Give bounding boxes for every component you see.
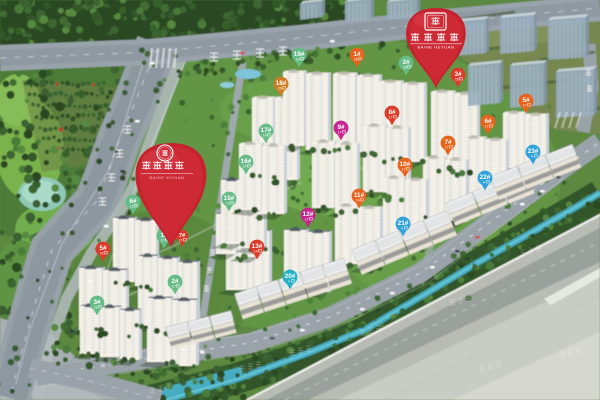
svg-text:26: 26 <box>94 305 98 309</box>
svg-text:24: 24 <box>296 57 300 61</box>
svg-text:22#: 22# <box>480 174 491 181</box>
svg-text:17: 17 <box>389 115 393 119</box>
svg-text:4: 4 <box>483 180 485 184</box>
svg-text:26: 26 <box>455 77 459 81</box>
svg-text:20#: 20# <box>285 273 296 280</box>
svg-text:BAIHE XIYUAN: BAIHE XIYUAN <box>149 175 184 180</box>
svg-text:14: 14 <box>254 249 258 253</box>
svg-text:14: 14 <box>263 133 267 137</box>
svg-text:17: 17 <box>485 124 489 128</box>
svg-text:17: 17 <box>305 217 309 221</box>
svg-text:26: 26 <box>403 65 407 69</box>
svg-text:21#: 21# <box>398 220 409 227</box>
svg-text:17: 17 <box>172 284 176 288</box>
svg-text:4: 4 <box>401 226 403 230</box>
svg-text:14: 14 <box>356 198 360 202</box>
svg-text:17: 17 <box>523 103 527 107</box>
svg-text:17: 17 <box>402 167 406 171</box>
svg-text:BAIHE HEYUAN: BAIHE HEYUAN <box>418 45 455 50</box>
svg-text:26: 26 <box>278 86 282 90</box>
svg-text:26: 26 <box>354 57 358 61</box>
svg-text:17: 17 <box>445 145 449 149</box>
svg-text:17: 17 <box>161 238 165 242</box>
svg-text:14: 14 <box>226 201 230 205</box>
svg-text:23#: 23# <box>528 148 539 155</box>
svg-text:14: 14 <box>243 164 247 168</box>
svg-text:26: 26 <box>100 251 104 255</box>
svg-text:4: 4 <box>531 154 533 158</box>
svg-text:17: 17 <box>179 238 183 242</box>
svg-text:17: 17 <box>338 130 342 134</box>
svg-text:13: 13 <box>130 204 134 208</box>
svg-text:4: 4 <box>288 279 290 283</box>
